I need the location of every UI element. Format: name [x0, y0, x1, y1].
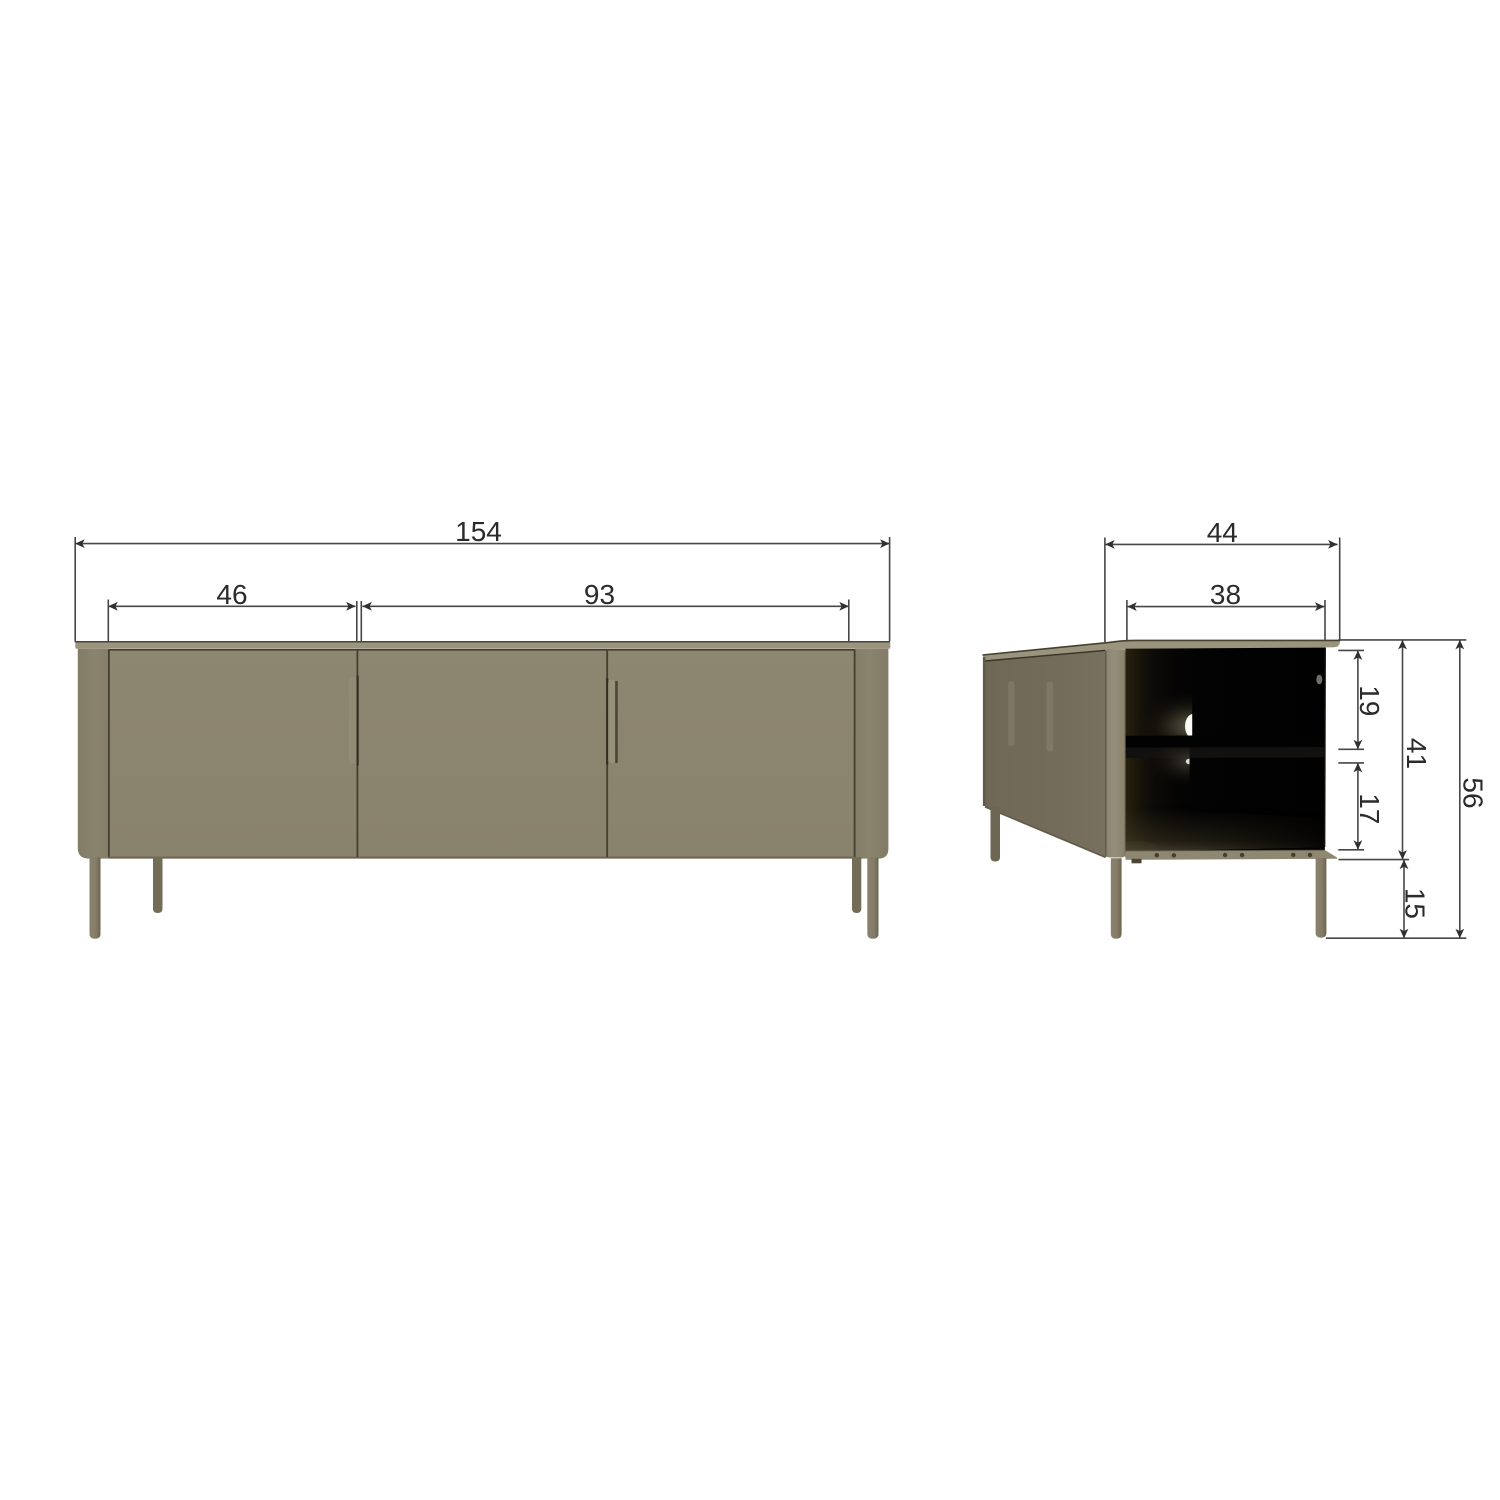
- svg-text:56: 56: [1457, 777, 1488, 808]
- svg-text:19: 19: [1354, 685, 1385, 716]
- svg-text:41: 41: [1401, 738, 1432, 769]
- svg-text:17: 17: [1354, 793, 1385, 824]
- svg-text:15: 15: [1400, 888, 1431, 919]
- svg-text:93: 93: [584, 579, 615, 610]
- svg-text:46: 46: [216, 579, 247, 610]
- svg-text:154: 154: [455, 516, 502, 547]
- svg-text:44: 44: [1207, 517, 1238, 548]
- svg-text:38: 38: [1210, 579, 1241, 610]
